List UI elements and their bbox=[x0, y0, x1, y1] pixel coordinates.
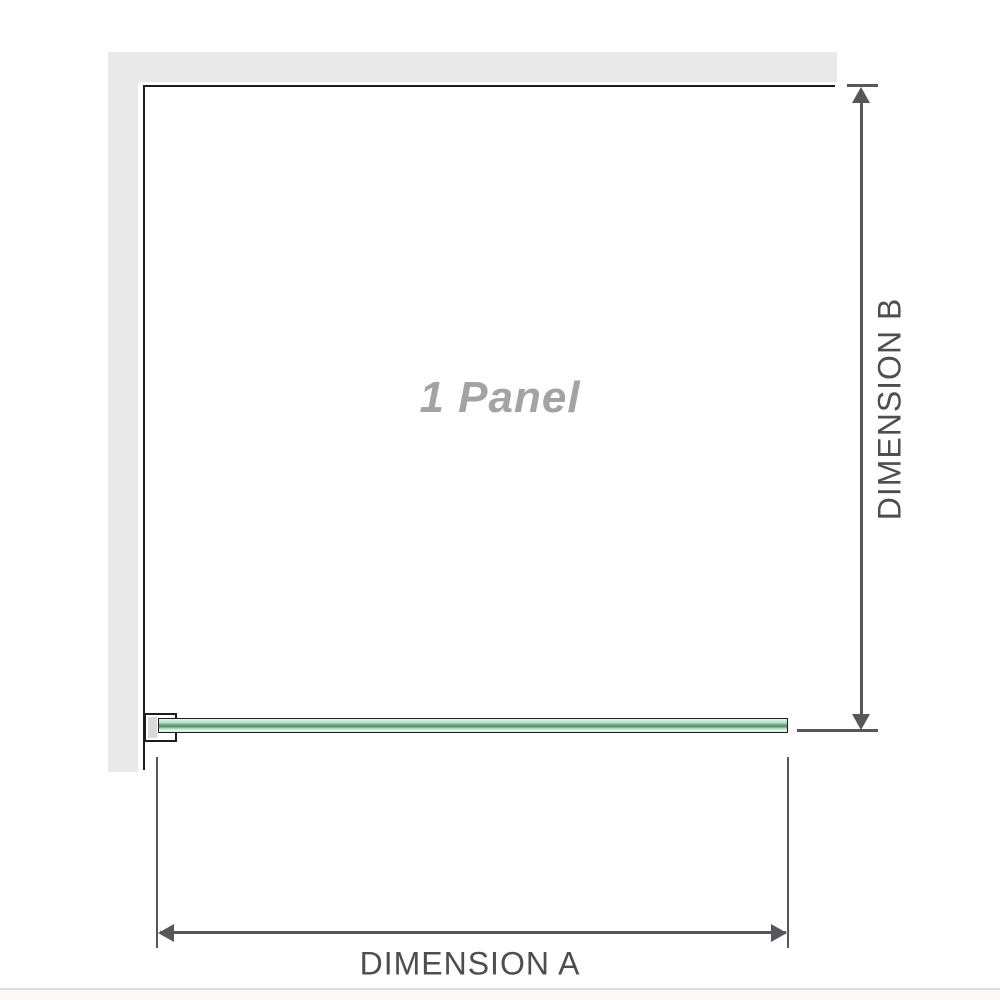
arrow-right-icon bbox=[771, 924, 787, 942]
wall-top bbox=[108, 52, 837, 82]
wall-left bbox=[108, 52, 138, 772]
arrow-down-icon bbox=[852, 714, 870, 730]
dimension-a-left-extension bbox=[156, 757, 158, 948]
dimension-a-line bbox=[160, 931, 786, 934]
panel-label: 1 Panel bbox=[419, 373, 580, 423]
dimension-b-label: DIMENSION B bbox=[872, 298, 909, 521]
panel-outline bbox=[143, 85, 835, 770]
wall-bracket-shade bbox=[148, 717, 157, 738]
footer-area bbox=[0, 990, 1000, 1000]
dimension-a-right-extension bbox=[787, 757, 789, 948]
arrow-left-icon bbox=[158, 924, 174, 942]
diagram-canvas: 1 Panel DIMENSION B DIMENSION A bbox=[0, 0, 1000, 1000]
glass-panel bbox=[158, 718, 788, 733]
arrow-up-icon bbox=[852, 87, 870, 103]
dimension-b-line bbox=[860, 95, 863, 723]
dimension-a-label: DIMENSION A bbox=[360, 946, 581, 983]
